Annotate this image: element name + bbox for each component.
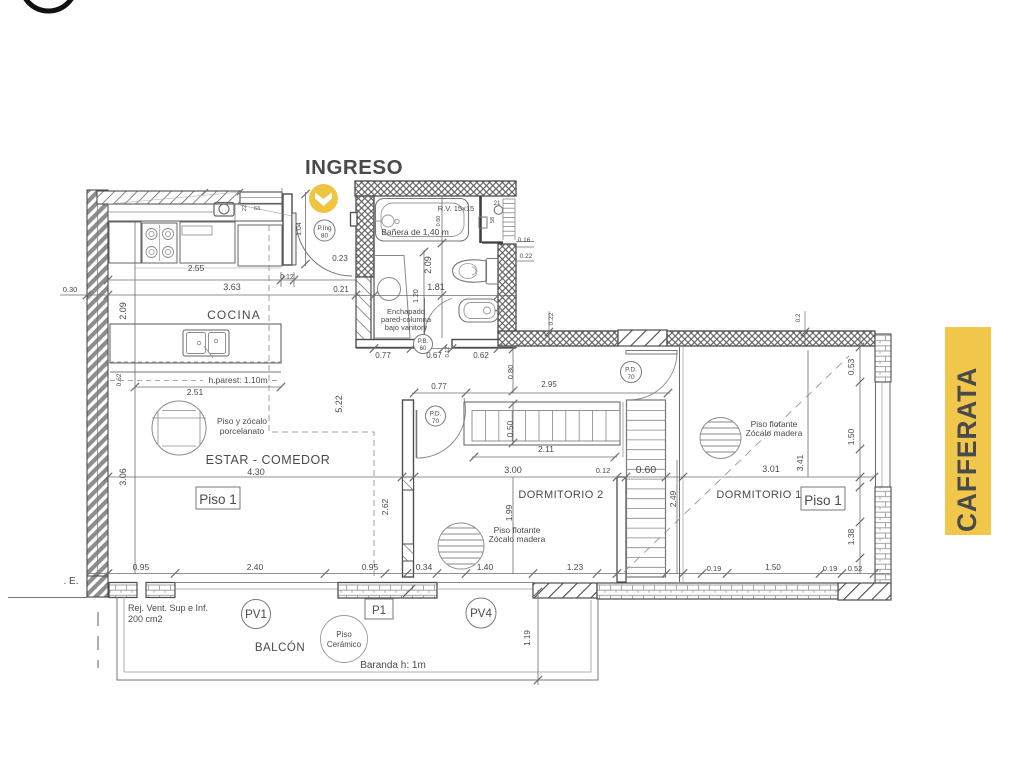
- svg-text:2.62: 2.62: [380, 498, 390, 515]
- svg-text:COCINA: COCINA: [207, 308, 261, 322]
- svg-text:0.16: 0.16: [518, 237, 531, 244]
- svg-text:Piso 1: Piso 1: [199, 492, 237, 507]
- svg-text:200 cm2: 200 cm2: [128, 614, 163, 624]
- svg-text:0.77: 0.77: [375, 351, 391, 360]
- svg-text:Piso: Piso: [336, 630, 352, 639]
- svg-text:Bañera de 1,40 m: Bañera de 1,40 m: [381, 227, 449, 237]
- svg-text:. E.: . E.: [63, 576, 78, 587]
- svg-text:5.22: 5.22: [334, 395, 344, 413]
- svg-text:0.95: 0.95: [133, 562, 150, 572]
- svg-text:1.50: 1.50: [765, 563, 781, 572]
- svg-text:0.80: 0.80: [506, 365, 515, 380]
- svg-text:4.30: 4.30: [247, 467, 265, 477]
- svg-text:BALCÓN: BALCÓN: [255, 641, 305, 654]
- svg-text:0.52: 0.52: [848, 564, 863, 573]
- svg-text:22: 22: [242, 205, 248, 211]
- svg-text:0.53: 0.53: [846, 358, 856, 375]
- svg-text:h.parest: 1.10m: h.parest: 1.10m: [208, 375, 267, 385]
- svg-text:DORMITORIO 2: DORMITORIO 2: [518, 489, 603, 501]
- svg-text:P.D.: P.D.: [430, 411, 442, 418]
- svg-text:0.12: 0.12: [596, 466, 611, 475]
- svg-text:PV1: PV1: [245, 609, 267, 621]
- svg-text:P.B.: P.B.: [418, 339, 429, 345]
- svg-text:Cerámico: Cerámico: [327, 640, 362, 649]
- svg-text:3.00: 3.00: [504, 465, 522, 475]
- svg-text:0.23: 0.23: [332, 254, 348, 263]
- svg-text:INGRESO: INGRESO: [305, 156, 403, 179]
- svg-text:1.81: 1.81: [427, 282, 445, 292]
- svg-text:0.12: 0.12: [280, 274, 294, 281]
- svg-text:0.12: 0.12: [445, 347, 451, 358]
- svg-text:ESTAR - COMEDOR: ESTAR - COMEDOR: [206, 453, 331, 467]
- svg-text:P.Ing: P.Ing: [317, 225, 332, 232]
- svg-text:3.63: 3.63: [223, 282, 241, 292]
- svg-text:0.22: 0.22: [520, 253, 533, 260]
- svg-text:DORMITORIO 1: DORMITORIO 1: [716, 489, 801, 501]
- svg-text:70: 70: [432, 418, 440, 425]
- svg-text:0.22: 0.22: [548, 312, 555, 325]
- svg-text:2.51: 2.51: [187, 387, 204, 397]
- svg-text:0.67: 0.67: [426, 351, 442, 360]
- svg-text:58: 58: [490, 217, 496, 223]
- svg-text:0.30: 0.30: [63, 285, 78, 294]
- svg-text:porcelanato: porcelanato: [220, 426, 265, 436]
- svg-text:2.55: 2.55: [188, 263, 205, 273]
- svg-text:1.38: 1.38: [846, 528, 856, 545]
- svg-text:0.50: 0.50: [505, 420, 515, 437]
- svg-text:P.D.: P.D.: [625, 367, 637, 374]
- svg-text:1.23: 1.23: [567, 562, 584, 572]
- svg-text:2.09: 2.09: [118, 302, 128, 320]
- svg-text:1.99: 1.99: [504, 504, 514, 521]
- svg-text:0.21: 0.21: [333, 285, 349, 294]
- svg-text:0.60: 0.60: [636, 464, 657, 476]
- svg-text:1.04: 1.04: [296, 222, 303, 236]
- svg-text:Piso y zócalo: Piso y zócalo: [217, 416, 267, 426]
- svg-text:80: 80: [321, 233, 329, 240]
- svg-text:1.20: 1.20: [413, 289, 420, 303]
- svg-text:bajo vanitory: bajo vanitory: [385, 323, 428, 332]
- svg-text:0.34: 0.34: [416, 562, 433, 572]
- svg-text:2.40: 2.40: [247, 562, 264, 572]
- svg-text:1.40: 1.40: [477, 562, 494, 572]
- svg-text:R.V. 15x15: R.V. 15x15: [438, 204, 474, 213]
- svg-text:2.09: 2.09: [423, 256, 433, 274]
- svg-text:PV4: PV4: [470, 608, 492, 620]
- svg-text:Piso 1: Piso 1: [804, 493, 842, 508]
- svg-text:0.62: 0.62: [116, 373, 123, 386]
- svg-text:21: 21: [494, 201, 501, 207]
- svg-text:0.19: 0.19: [823, 564, 838, 573]
- svg-text:2.11: 2.11: [538, 444, 554, 454]
- svg-text:Baranda h: 1m: Baranda h: 1m: [360, 660, 426, 671]
- svg-text:70: 70: [627, 374, 635, 381]
- svg-text:1.19: 1.19: [523, 630, 532, 646]
- svg-text:0.62: 0.62: [473, 351, 489, 360]
- svg-text:3.01: 3.01: [762, 464, 780, 474]
- svg-text:0.60: 0.60: [436, 216, 442, 227]
- svg-text:63: 63: [254, 206, 260, 212]
- svg-text:2.95: 2.95: [541, 380, 557, 389]
- svg-text:Zócalo madera: Zócalo madera: [746, 428, 803, 438]
- svg-text:1.50: 1.50: [846, 428, 856, 445]
- svg-text:Rej. Vent. Sup e Inf.: Rej. Vent. Sup e Inf.: [128, 603, 208, 613]
- svg-text:CAFFERATA: CAFFERATA: [952, 367, 982, 532]
- svg-text:0.95: 0.95: [362, 562, 379, 572]
- svg-text:0.19: 0.19: [707, 564, 722, 573]
- svg-text:0.77: 0.77: [431, 382, 447, 391]
- svg-text:0.2: 0.2: [796, 313, 802, 322]
- svg-text:3.06: 3.06: [118, 468, 128, 486]
- svg-text:P1: P1: [372, 605, 386, 617]
- svg-text:Zócalo madera: Zócalo madera: [489, 534, 546, 544]
- svg-text:3.41: 3.41: [795, 454, 805, 471]
- svg-text:2.49: 2.49: [668, 490, 678, 507]
